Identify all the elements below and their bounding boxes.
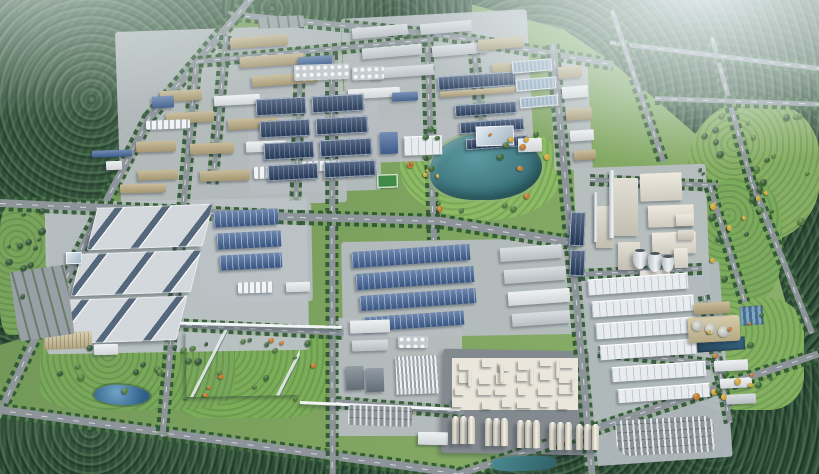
tree-icon — [707, 330, 711, 334]
tree-icon — [280, 341, 284, 345]
building — [92, 149, 132, 157]
solar-roof-warehouse — [324, 160, 377, 179]
tree-icon — [748, 342, 754, 348]
building — [640, 172, 683, 201]
tree-icon — [269, 338, 274, 343]
tree-icon — [748, 383, 753, 388]
tree-icon — [429, 166, 435, 172]
process-tower — [540, 359, 553, 367]
process-tower — [556, 360, 560, 378]
tree-icon — [727, 225, 733, 231]
tree-icon — [435, 136, 439, 140]
building — [380, 132, 399, 155]
process-tower — [500, 364, 504, 382]
tree-icon — [723, 371, 729, 377]
tree-icon — [747, 121, 751, 125]
process-tower — [518, 360, 529, 369]
tree-icon — [218, 371, 222, 375]
glass-building — [66, 252, 82, 264]
parking-southeast — [615, 415, 715, 456]
tree-icon — [273, 348, 278, 353]
chimney-short — [594, 192, 597, 242]
building — [612, 178, 638, 236]
tree-icon — [437, 206, 443, 212]
tree-icon — [428, 126, 434, 132]
tree-icon — [720, 113, 725, 118]
tree-icon — [294, 397, 297, 400]
building — [674, 248, 689, 268]
tree-icon — [806, 172, 810, 176]
process-tower — [478, 387, 493, 395]
process-tower — [560, 360, 574, 368]
building — [152, 95, 175, 108]
tree-icon — [8, 245, 11, 248]
tree-icon — [710, 258, 715, 263]
process-tower — [479, 377, 493, 384]
building — [418, 432, 448, 446]
silo-cluster — [576, 424, 598, 449]
tree-icon — [497, 154, 503, 160]
tree-icon — [713, 127, 719, 133]
tree-icon — [728, 327, 732, 331]
tree-icon — [436, 174, 439, 177]
building — [352, 339, 388, 351]
tank-farm — [398, 336, 428, 348]
building — [138, 169, 178, 180]
tree-icon — [173, 345, 177, 349]
tree-icon — [693, 393, 700, 400]
solar-roof-warehouse — [260, 119, 311, 139]
process-tower — [559, 375, 572, 383]
process-tower — [540, 400, 550, 408]
tree-icon — [760, 313, 764, 317]
tree-icon — [122, 388, 128, 394]
tree-icon — [489, 133, 492, 136]
tree-icon — [714, 139, 719, 144]
blue-roof-warehouse — [217, 230, 282, 249]
building — [562, 85, 589, 99]
process-tower — [517, 401, 532, 408]
tree-icon — [748, 322, 751, 325]
tree-icon — [423, 155, 427, 159]
sports-court — [377, 174, 398, 189]
building — [570, 129, 595, 142]
storage-silo — [493, 418, 500, 446]
process-tower — [455, 387, 466, 395]
tree-icon — [750, 373, 754, 377]
storage-silo — [452, 416, 459, 444]
tree-icon — [524, 193, 530, 199]
building — [190, 142, 234, 155]
storage-silo — [533, 420, 540, 448]
process-tower — [572, 378, 575, 391]
tree-icon — [437, 202, 441, 206]
process-tower — [517, 373, 529, 382]
tree-icon — [503, 142, 509, 148]
storage-silo — [557, 422, 564, 450]
storage-silo — [525, 420, 532, 448]
building — [136, 140, 176, 152]
tree-icon — [241, 339, 246, 344]
solar-roof-warehouse — [312, 94, 365, 114]
large-warehouse — [87, 204, 213, 250]
tree-icon — [460, 208, 464, 212]
building — [558, 65, 583, 79]
greenhouse-row — [512, 58, 553, 73]
building — [574, 149, 597, 161]
tree-icon — [34, 246, 38, 250]
tree-icon — [76, 364, 81, 369]
process-tower — [558, 399, 569, 409]
tree-icon — [141, 362, 146, 367]
process-tower — [482, 401, 492, 409]
building — [350, 319, 390, 333]
storage-silo — [584, 424, 591, 450]
tree-icon — [534, 132, 538, 136]
tree-icon — [305, 340, 311, 346]
tree-icon — [544, 154, 550, 160]
parking-south-mid — [348, 405, 413, 427]
tree-icon — [311, 363, 316, 368]
striped-building — [395, 355, 438, 394]
solar-roof-warehouse — [268, 163, 319, 182]
tree-icon — [520, 144, 525, 149]
tree-icon — [508, 137, 513, 142]
tree-icon — [40, 208, 45, 213]
storage-silo — [460, 416, 467, 444]
tree-icon — [205, 342, 208, 345]
tree-icon — [699, 168, 703, 172]
storage-silo — [485, 418, 492, 446]
tree-icon — [38, 238, 41, 241]
tree-icon — [22, 213, 26, 217]
process-tower — [538, 387, 554, 395]
tree-icon — [752, 135, 756, 139]
storage-silo — [565, 422, 572, 450]
tree-icon — [39, 228, 46, 235]
process-tower — [495, 388, 508, 395]
building — [566, 107, 593, 121]
building — [106, 161, 122, 171]
tree-icon — [428, 156, 431, 159]
tree-icon — [410, 161, 414, 165]
tree-icon — [765, 158, 769, 162]
tree-icon — [134, 369, 140, 375]
storage-silo — [592, 424, 599, 450]
park-trees — [406, 122, 556, 214]
tree-icon — [503, 203, 508, 208]
tree-icon — [524, 137, 529, 142]
tree-icon — [26, 239, 32, 245]
tree-icon — [248, 338, 252, 342]
tree-icon — [735, 378, 741, 384]
tree-icon — [6, 259, 13, 266]
building — [120, 184, 166, 194]
silo-cluster — [549, 422, 575, 449]
tree-icon — [713, 354, 717, 358]
tree-icon — [18, 243, 23, 248]
tree-icon — [195, 358, 202, 365]
tree-icon — [28, 262, 34, 268]
tree-icon — [794, 114, 798, 118]
tree-icon — [423, 173, 426, 176]
tree-icon — [21, 294, 26, 299]
process-tower — [540, 371, 552, 380]
solar-roof-warehouse — [569, 212, 586, 247]
solar-roof-warehouse — [264, 141, 315, 161]
storage-silo — [468, 416, 475, 444]
road-forest-ne-2 — [655, 96, 819, 107]
tree-icon — [721, 394, 727, 400]
tree-icon — [717, 151, 724, 158]
tree-icon — [716, 388, 721, 393]
process-tower — [468, 370, 472, 386]
process-tower — [530, 368, 534, 384]
tree-icon — [716, 236, 722, 242]
meadow-east-trees — [702, 184, 774, 296]
tree-icon — [754, 166, 761, 173]
tree-icon — [511, 206, 517, 212]
tree-icon — [756, 382, 762, 388]
storage-silo — [549, 422, 556, 450]
tree-icon — [784, 114, 791, 121]
tree-icon — [722, 276, 728, 282]
tree-icon — [742, 216, 746, 220]
tree-icon — [702, 133, 708, 139]
chimney-tall — [609, 170, 614, 238]
tree-icon — [87, 345, 93, 351]
solar-roof-warehouse — [320, 138, 373, 158]
silo-cluster — [517, 420, 543, 447]
tree-icon — [78, 374, 85, 381]
storage-silo — [501, 418, 508, 446]
tree-icon — [772, 154, 776, 158]
building — [392, 91, 418, 101]
tree-icon — [710, 203, 716, 209]
tree-icon — [265, 342, 270, 347]
building — [286, 282, 310, 293]
tank-farm — [352, 65, 384, 80]
storage-silo — [576, 424, 583, 450]
tree-icon — [517, 166, 523, 172]
silo-cluster — [452, 416, 478, 443]
tree-icon — [423, 134, 430, 141]
solar-roof-warehouse — [316, 116, 369, 136]
large-warehouse — [71, 250, 201, 297]
industrial-park-aerial-render — [0, 0, 819, 474]
verge-west-trees — [2, 208, 46, 326]
silo-cluster — [485, 418, 511, 445]
tree-icon — [702, 172, 705, 175]
meadow-se-trees — [690, 304, 798, 404]
tree-icon — [764, 191, 768, 195]
tree-icon — [58, 371, 63, 376]
blue-roof-warehouse — [214, 208, 279, 227]
parking-north — [258, 15, 304, 29]
tank-farm — [294, 63, 351, 81]
tree-icon — [181, 347, 187, 353]
process-tower — [482, 358, 493, 367]
verge-sw-trees — [44, 334, 224, 404]
process-tower — [502, 398, 513, 407]
building — [366, 368, 385, 393]
solar-roof-warehouse — [256, 97, 307, 117]
building — [200, 169, 250, 182]
building — [346, 366, 365, 391]
tree-icon — [798, 218, 804, 224]
tree-icon — [709, 214, 716, 221]
tree-icon — [750, 189, 753, 192]
tree-icon — [264, 375, 269, 380]
process-tower — [518, 386, 528, 395]
tree-icon — [21, 265, 27, 271]
tree-icon — [745, 232, 749, 236]
tree-icon — [770, 377, 774, 381]
solar-roof-warehouse — [569, 250, 585, 277]
silo-row — [238, 281, 274, 293]
storage-silo — [517, 420, 524, 448]
tree-icon — [157, 369, 163, 375]
road-main-mid — [300, 213, 442, 225]
tree-icon — [294, 356, 298, 360]
silo-row — [146, 119, 190, 130]
process-tower — [452, 398, 463, 408]
tree-icon — [253, 385, 257, 389]
tree-icon — [756, 196, 761, 201]
